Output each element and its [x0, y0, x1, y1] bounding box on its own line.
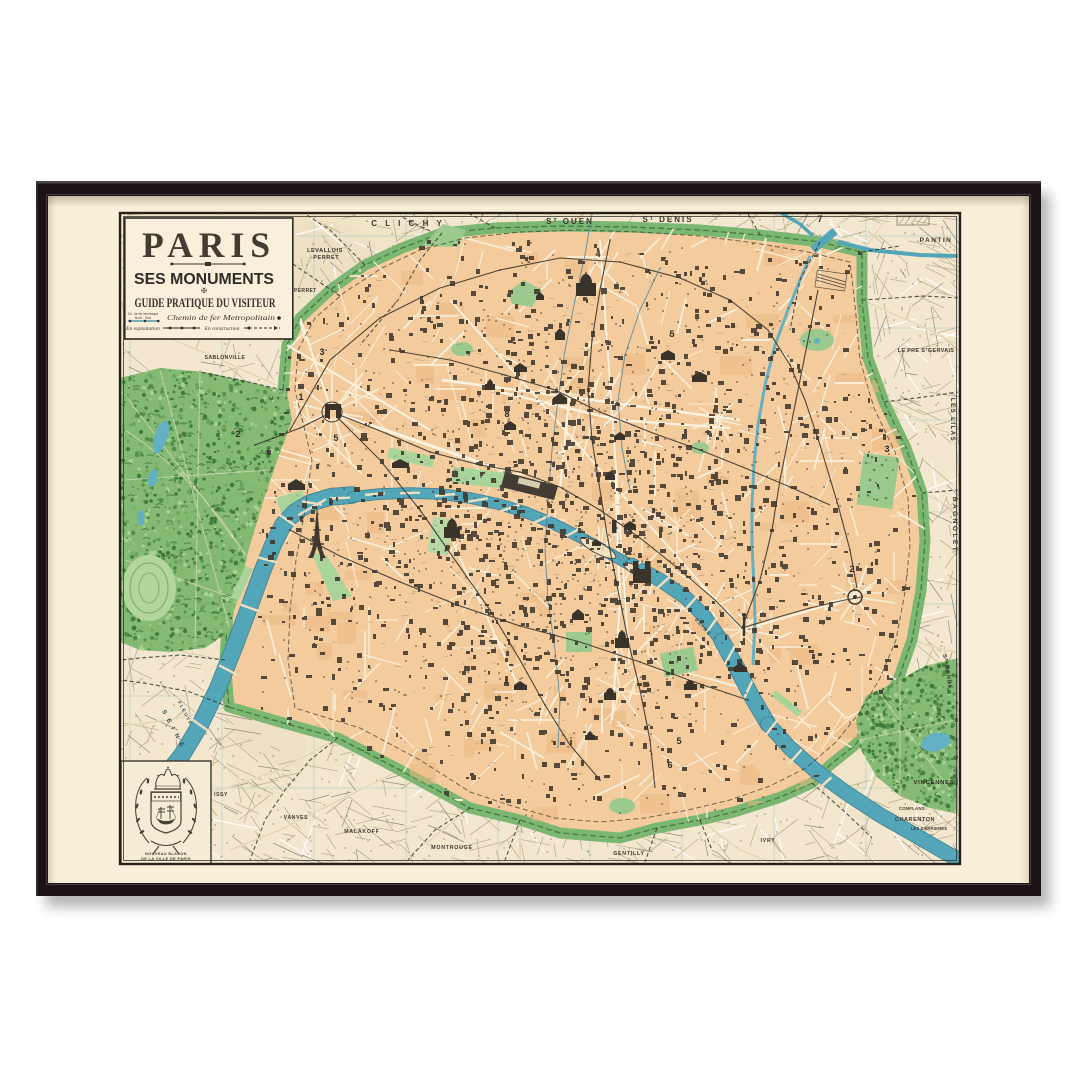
- svg-text:ST OUEN: ST OUEN: [546, 217, 594, 226]
- svg-text:CHARENTON: CHARENTON: [895, 817, 935, 823]
- svg-text:5: 5: [669, 329, 674, 339]
- svg-text:C L I C H Y: C L I C H Y: [371, 219, 445, 228]
- svg-text:PARIS: PARIS: [142, 225, 276, 265]
- svg-text:6: 6: [667, 760, 672, 770]
- svg-text:✠: ✠: [201, 287, 207, 295]
- svg-text:LEVALLOIS: LEVALLOIS: [307, 248, 343, 254]
- svg-text:4: 4: [595, 249, 600, 259]
- svg-text:3: 3: [884, 444, 889, 454]
- svg-text:CONFLANS: CONFLANS: [899, 806, 925, 811]
- svg-text:3: 3: [319, 347, 324, 357]
- svg-text:MALAKOFF: MALAKOFF: [344, 829, 380, 835]
- svg-text:En exploitation: En exploitation: [125, 326, 160, 332]
- svg-text:2: 2: [849, 564, 854, 574]
- svg-text:SES MONUMENTS: SES MONUMENTS: [134, 271, 274, 288]
- svg-text:2: 2: [235, 429, 240, 439]
- svg-text:Nord - Sud: Nord - Sud: [135, 316, 152, 320]
- svg-text:VANVES: VANVES: [284, 815, 308, 821]
- svg-text:PANTIN: PANTIN: [920, 237, 953, 244]
- svg-text:-PERRET: -PERRET: [311, 255, 339, 261]
- svg-text:ISSY: ISSY: [214, 792, 228, 798]
- svg-text:IVRY: IVRY: [760, 838, 775, 844]
- svg-text:GENTILLY: GENTILLY: [613, 851, 645, 857]
- svg-text:LES CARRIERES: LES CARRIERES: [911, 826, 948, 831]
- svg-text:LES LILAS: LES LILAS: [949, 398, 955, 442]
- svg-text:GUIDE PRATIQUE DU VISITEUR: GUIDE PRATIQUE DU VISITEUR: [135, 296, 277, 310]
- svg-text:NOUVEAU BLASON: NOUVEAU BLASON: [145, 852, 187, 856]
- svg-text:5: 5: [676, 736, 681, 746]
- svg-text:5: 5: [333, 433, 338, 443]
- svg-text:En construction: En construction: [204, 326, 240, 332]
- svg-text:8: 8: [504, 409, 509, 419]
- svg-text:MONTROUGE: MONTROUGE: [431, 845, 473, 851]
- svg-text:1: 1: [298, 392, 303, 402]
- svg-text:7: 7: [817, 214, 822, 224]
- svg-text:VINCENNES: VINCENNES: [913, 780, 954, 786]
- svg-text:BAGNOLET: BAGNOLET: [951, 497, 958, 553]
- svg-text:SABLONVILLE: SABLONVILLE: [205, 355, 246, 361]
- svg-text:Chemin de fer Metropolitain: Chemin de fer Metropolitain: [167, 314, 276, 322]
